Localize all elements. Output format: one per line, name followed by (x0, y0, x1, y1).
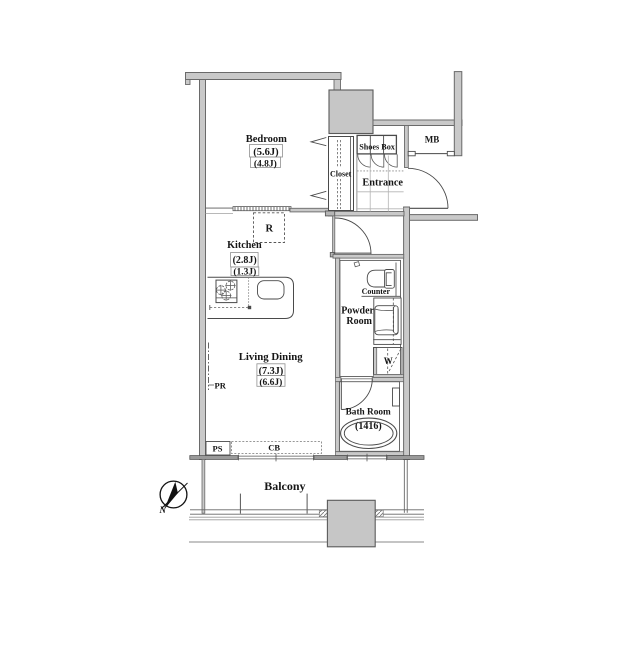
svg-text:Bedroom: Bedroom (246, 134, 287, 145)
svg-text:R: R (266, 224, 274, 235)
svg-text:Counter: Counter (362, 287, 391, 296)
svg-text:(1.3J): (1.3J) (233, 266, 256, 277)
svg-text:PR: PR (215, 380, 227, 390)
svg-text:MB: MB (425, 135, 440, 145)
svg-text:Bath Room: Bath Room (346, 407, 391, 417)
svg-text:Entrance: Entrance (362, 177, 403, 188)
svg-text:Kitchen: Kitchen (227, 240, 262, 251)
svg-text:(5.6J): (5.6J) (253, 147, 279, 158)
svg-text:N: N (159, 505, 167, 515)
svg-text:Room: Room (346, 316, 372, 327)
svg-text:Living Dining: Living Dining (239, 351, 304, 363)
svg-text:CB: CB (268, 443, 280, 453)
svg-text:PS: PS (213, 444, 223, 454)
svg-text:(6.6J): (6.6J) (259, 377, 282, 388)
svg-text:Balcony: Balcony (264, 479, 305, 493)
svg-text:(2.8J): (2.8J) (233, 255, 257, 266)
svg-text:Shoes Box: Shoes Box (359, 142, 396, 151)
svg-text:Closet: Closet (330, 170, 352, 179)
svg-text:(4.8J): (4.8J) (254, 158, 277, 169)
svg-text:W: W (384, 356, 393, 366)
